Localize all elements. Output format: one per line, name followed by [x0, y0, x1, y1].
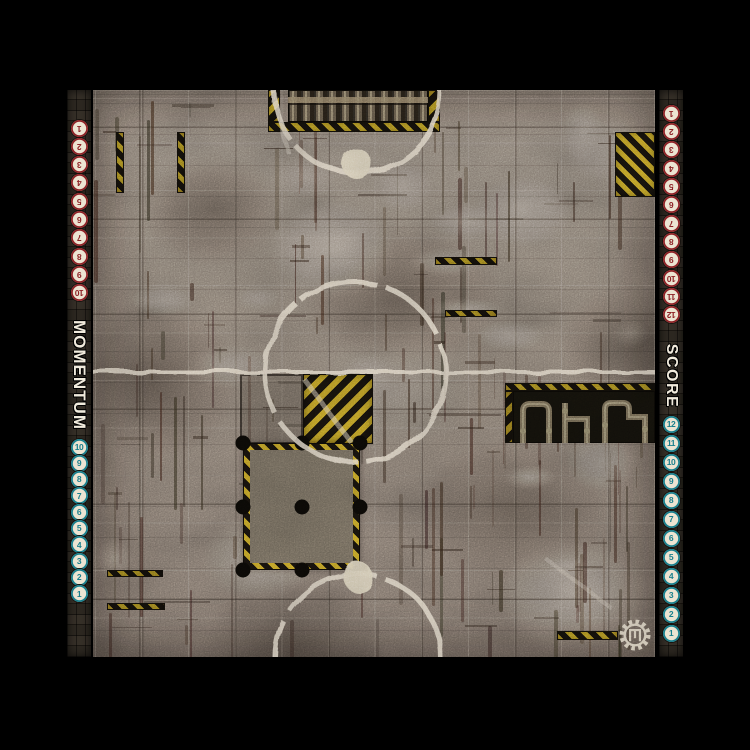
score-red-chip-5: 5	[663, 178, 680, 195]
momentum-red-chip-9: 9	[71, 266, 88, 283]
score-red-chip-9: 9	[663, 251, 680, 268]
pipes-icon	[513, 391, 655, 443]
score-label: SCORE	[662, 344, 680, 408]
score-red-chip-3: 3	[663, 141, 680, 158]
score-teal-chip-11: 11	[663, 435, 680, 452]
momentum-teal-chip-7: 7	[71, 487, 88, 504]
momentum-teal-chip-5: 5	[71, 520, 88, 537]
momentum-red-chip-5: 5	[71, 193, 88, 210]
score-teal-chip-8: 8	[663, 492, 680, 509]
momentum-label: MOMENTUM	[69, 320, 89, 430]
hazard-square-center	[303, 374, 373, 444]
top-goal-spot	[342, 149, 372, 179]
right-pit-hazard-top	[505, 383, 655, 391]
momentum-teal-chip-8: 8	[71, 471, 88, 488]
score-red-chip-8: 8	[663, 233, 680, 250]
momentum-red-chip-6: 6	[71, 211, 88, 228]
score-teal-chip-4: 4	[663, 568, 680, 585]
score-teal-chip-5: 5	[663, 549, 680, 566]
right-pit-hazard-left	[505, 391, 513, 443]
score-teal-chip-3: 3	[663, 587, 680, 604]
top-pit-hazard-left	[268, 90, 280, 122]
score-teal-chip-12: 12	[663, 416, 680, 433]
top-pipe-pit	[288, 90, 428, 122]
score-red-chip-7: 7	[663, 215, 680, 232]
score-teal-chip-1: 1	[663, 625, 680, 642]
momentum-red-chip-8: 8	[71, 248, 88, 265]
score-red-chip-10: 10	[663, 270, 680, 287]
trap-strip-bottomleft-a	[107, 570, 163, 577]
momentum-track: 12345678910 MOMENTUM 10987654321	[67, 90, 91, 657]
momentum-red-chip-1: 1	[71, 120, 88, 137]
score-teal-chip-7: 7	[663, 511, 680, 528]
score-red-chip-1: 1	[663, 105, 680, 122]
momentum-red-chip-10: 10	[71, 284, 88, 301]
momentum-teal-chip-10: 10	[71, 439, 88, 456]
momentum-teal-chip-6: 6	[71, 504, 88, 521]
momentum-red-chip-7: 7	[71, 229, 88, 246]
top-pit-hazard-bottom	[268, 122, 440, 132]
score-red-chip-2: 2	[663, 123, 680, 140]
trap-strip-topleft-b	[177, 132, 185, 193]
score-track: 123456789101112 SCORE 121110987654321	[659, 90, 683, 657]
gear-logo-icon	[617, 617, 653, 653]
momentum-teal-chip-3: 3	[71, 553, 88, 570]
trap-outline-square	[240, 374, 303, 444]
score-teal-chip-9: 9	[663, 473, 680, 490]
score-red-chip-12: 12	[663, 306, 680, 323]
top-pit-hazard-right	[428, 90, 440, 122]
momentum-teal-chip-9: 9	[71, 455, 88, 472]
momentum-teal-chip-1: 1	[71, 585, 88, 602]
trap-strip-bottomleft-b	[107, 603, 165, 610]
game-mat: 12345678910 MOMENTUM 10987654321 1234567…	[0, 0, 750, 750]
right-pipe-pit	[513, 391, 655, 443]
momentum-red-chip-2: 2	[71, 138, 88, 155]
crate-square	[243, 443, 360, 570]
score-red-chip-6: 6	[663, 196, 680, 213]
momentum-red-chip-4: 4	[71, 174, 88, 191]
trap-strip-bottomright	[557, 631, 618, 640]
score-red-chip-11: 11	[663, 288, 680, 305]
score-teal-chip-10: 10	[663, 454, 680, 471]
score-teal-chip-2: 2	[663, 606, 680, 623]
momentum-teal-chip-2: 2	[71, 569, 88, 586]
momentum-red-chip-3: 3	[71, 156, 88, 173]
pitch-field	[93, 90, 655, 657]
hazard-square-right-edge	[615, 132, 655, 197]
trap-strip-midright-a	[435, 257, 497, 265]
trap-strip-midright-b	[445, 310, 497, 317]
momentum-teal-chip-4: 4	[71, 536, 88, 553]
score-red-chip-4: 4	[663, 160, 680, 177]
score-teal-chip-6: 6	[663, 530, 680, 547]
trap-strip-topleft-a	[116, 132, 124, 193]
